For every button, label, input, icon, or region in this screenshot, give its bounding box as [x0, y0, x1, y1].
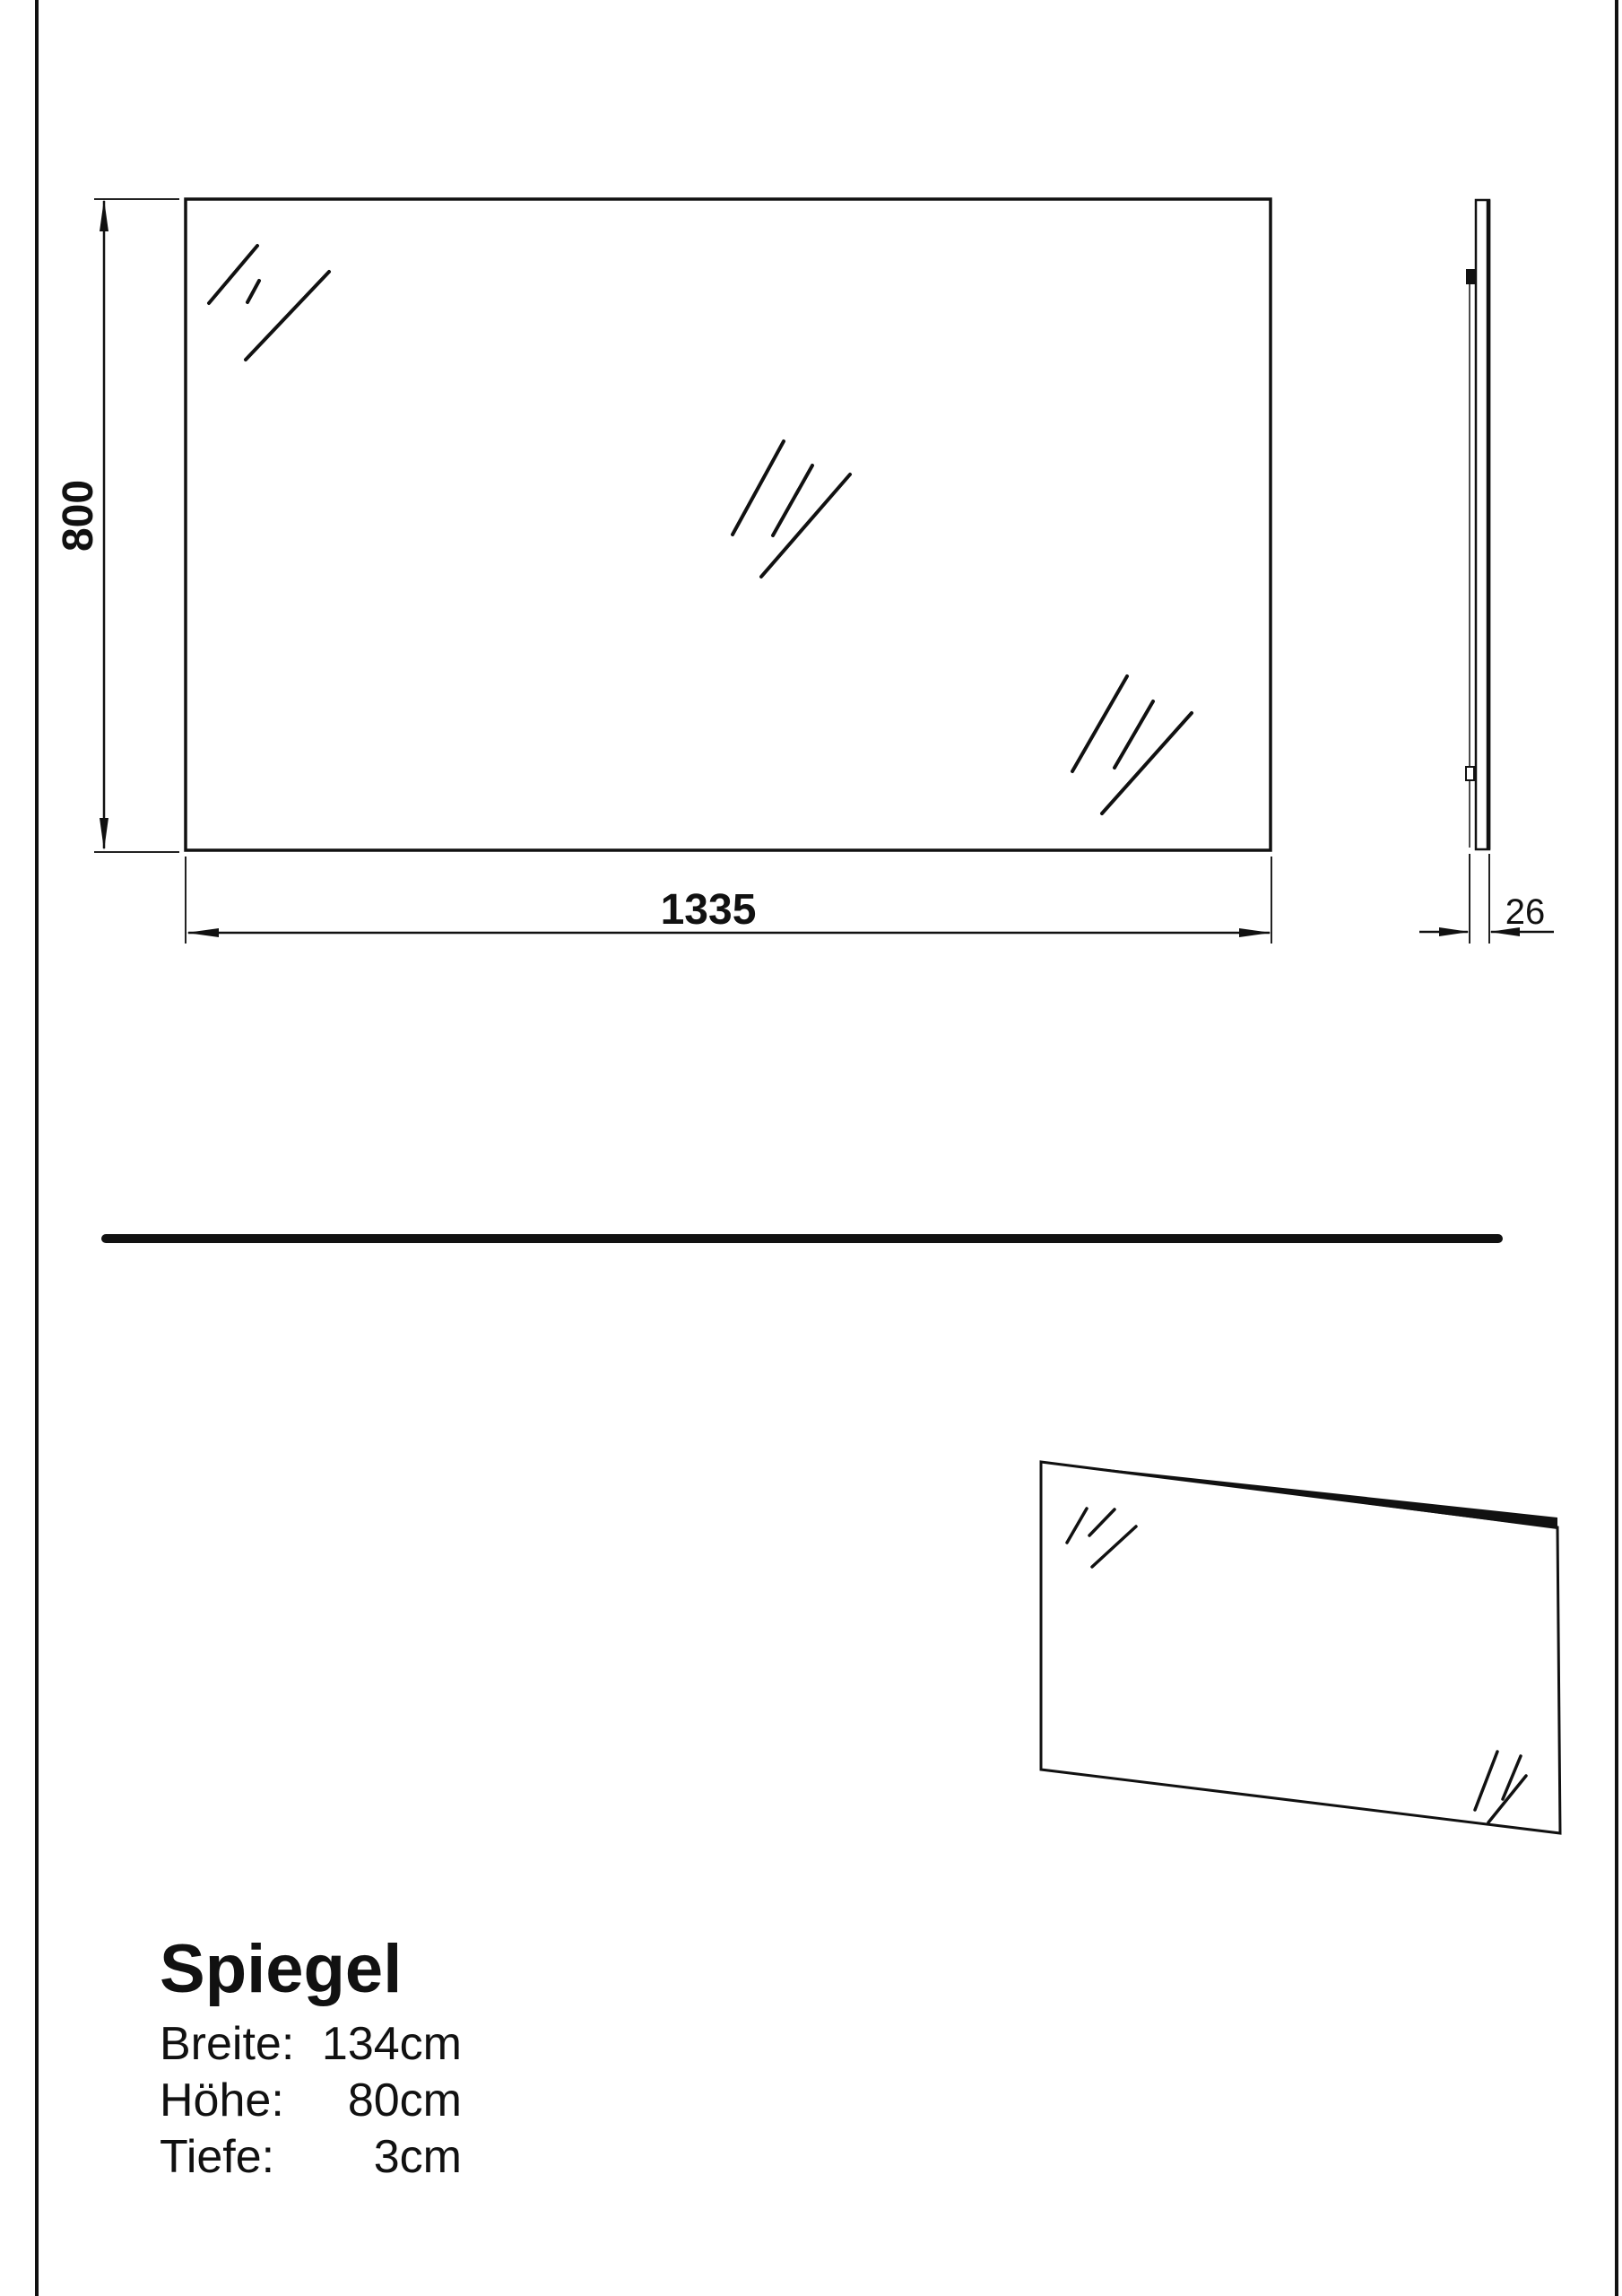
arrow-right-icon — [1239, 928, 1271, 937]
mount-bracket-top — [1466, 269, 1475, 284]
width-dimension-label: 1335 — [661, 886, 757, 934]
arrow-left-icon — [186, 928, 219, 937]
spec-row-breite: Breite: 134cm — [160, 2016, 462, 2073]
spec-sheet: Spiegel Breite: 134cm Höhe: 80cm Tiefe: … — [160, 1935, 462, 2186]
perspective-view — [1041, 1462, 1560, 1833]
depth-dimension-label: 26 — [1505, 892, 1546, 932]
width-dimension: 1335 — [186, 857, 1271, 944]
arrow-down-icon — [100, 818, 108, 850]
side-view — [1466, 200, 1489, 849]
height-dimension-label: 800 — [55, 480, 102, 552]
mount-bracket-bottom — [1466, 767, 1474, 780]
spec-value: 80cm — [348, 2073, 462, 2129]
spec-value: 3cm — [374, 2129, 462, 2186]
arrow-right-icon — [1439, 927, 1470, 936]
spec-row-hoehe: Höhe: 80cm — [160, 2073, 462, 2129]
spec-label: Breite: — [160, 2016, 294, 2073]
spec-label: Tiefe: — [160, 2129, 274, 2186]
height-dimension: 800 — [55, 199, 179, 852]
spec-row-tiefe: Tiefe: 3cm — [160, 2129, 462, 2186]
spec-rows: Breite: 134cm Höhe: 80cm Tiefe: 3cm — [160, 2016, 462, 2186]
technical-drawing-page: 800 1335 26 — [0, 0, 1622, 2296]
spec-label: Höhe: — [160, 2073, 284, 2129]
arrow-up-icon — [100, 199, 108, 231]
mirror-front-outline — [186, 199, 1271, 850]
front-view — [186, 199, 1271, 850]
product-title: Spiegel — [160, 1935, 462, 2004]
spec-value: 134cm — [322, 2016, 462, 2073]
depth-dimension: 26 — [1419, 854, 1554, 944]
